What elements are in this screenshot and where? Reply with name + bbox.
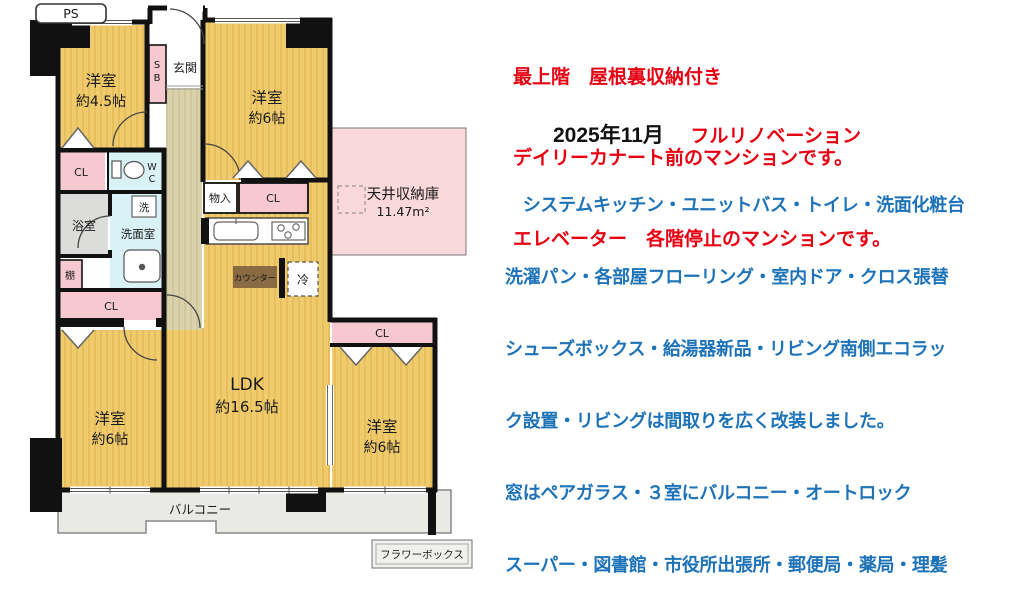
- balcony: バルコニー: [58, 490, 451, 533]
- bathroom-label: 浴室: [72, 218, 96, 233]
- wc-label-w: W: [147, 162, 157, 173]
- room-ne-name: 洋室: [251, 89, 282, 107]
- shelf-label: 棚: [65, 269, 75, 282]
- flower-box: フラワーボックス: [372, 540, 472, 568]
- closet-mid-label: CL: [266, 192, 281, 205]
- ldk-size: 約16.5帖: [215, 398, 278, 416]
- sink-icon: [214, 222, 258, 240]
- closet-strip-label: CL: [104, 300, 119, 313]
- room-sw-name: 洋室: [94, 410, 125, 428]
- feature-text-block: システムキッチン・ユニットバス・トイレ・洗面化粧台 洗濯パン・各部屋フローリング…: [505, 145, 965, 594]
- pillar: [30, 438, 62, 512]
- room-ne-size: 約6帖: [249, 111, 286, 127]
- sb-label-s: S: [154, 60, 160, 71]
- counter-label: カウンター: [234, 274, 277, 284]
- wc-label-c: C: [149, 174, 156, 185]
- headline-line-1: 最上階 屋根裏収納付き: [513, 64, 891, 91]
- toilet-icon: [112, 161, 144, 179]
- room-se-name: 洋室: [366, 418, 397, 436]
- pillar: [428, 488, 436, 535]
- kitchen-counter: [206, 218, 308, 244]
- room-sw-size: 約6帖: [92, 432, 129, 448]
- feature-line-4: ク設置・リビングは間取りを広く改装しました。: [505, 409, 965, 433]
- feature-line-2: 洗濯パン・各部屋フローリング・室内ドア・クロス張替: [505, 265, 965, 289]
- room-nw-size: 約4.5帖: [76, 94, 126, 110]
- feature-line-1: システムキッチン・ユニットバス・トイレ・洗面化粧台: [505, 193, 965, 217]
- washroom-label: 洗面室: [121, 227, 156, 241]
- attic-storage-box: 天井収納庫 11.47m²: [332, 128, 466, 255]
- attic-size: 11.47m²: [377, 204, 430, 219]
- laundry-label: 洗: [139, 202, 150, 214]
- pipe-shaft: PS: [36, 4, 106, 23]
- ps-label: PS: [63, 6, 79, 21]
- renovation-label: フルリノベーション: [690, 126, 861, 147]
- floorplan: 天井収納庫 11.47m² バルコニー フラワーボックス: [0, 0, 500, 594]
- room-se-size: 約6帖: [364, 440, 401, 456]
- balcony-label: バルコニー: [169, 502, 231, 517]
- vanity-sink-icon: [124, 250, 160, 282]
- fridge-label: 冷: [297, 273, 309, 287]
- room-nw-name: 洋室: [85, 72, 116, 90]
- feature-line-6: スーパー・図書館・市役所出張所・郵便局・薬局・理髪: [505, 553, 965, 577]
- flower-box-label: フラワーボックス: [380, 549, 464, 561]
- ldk-name: LDK: [230, 375, 265, 395]
- stove-icon: [272, 222, 305, 240]
- storage-label: 物入: [209, 191, 231, 205]
- closet-se-label: CL: [375, 327, 390, 340]
- closet-nw-label: CL: [74, 166, 89, 179]
- sb-label-b: B: [154, 73, 161, 84]
- attic-label: 天井収納庫: [367, 186, 440, 203]
- renovation-date: 2025年11月: [553, 124, 664, 147]
- listing-image: 天井収納庫 11.47m² バルコニー フラワーボックス: [0, 0, 1024, 594]
- entrance-label: 玄関: [173, 60, 197, 75]
- feature-line-5: 窓はペアガラス・３室にバルコニー・オートロック: [505, 481, 965, 505]
- feature-line-3: シューズボックス・給湯器新品・リビング南側エコラッ: [505, 337, 965, 361]
